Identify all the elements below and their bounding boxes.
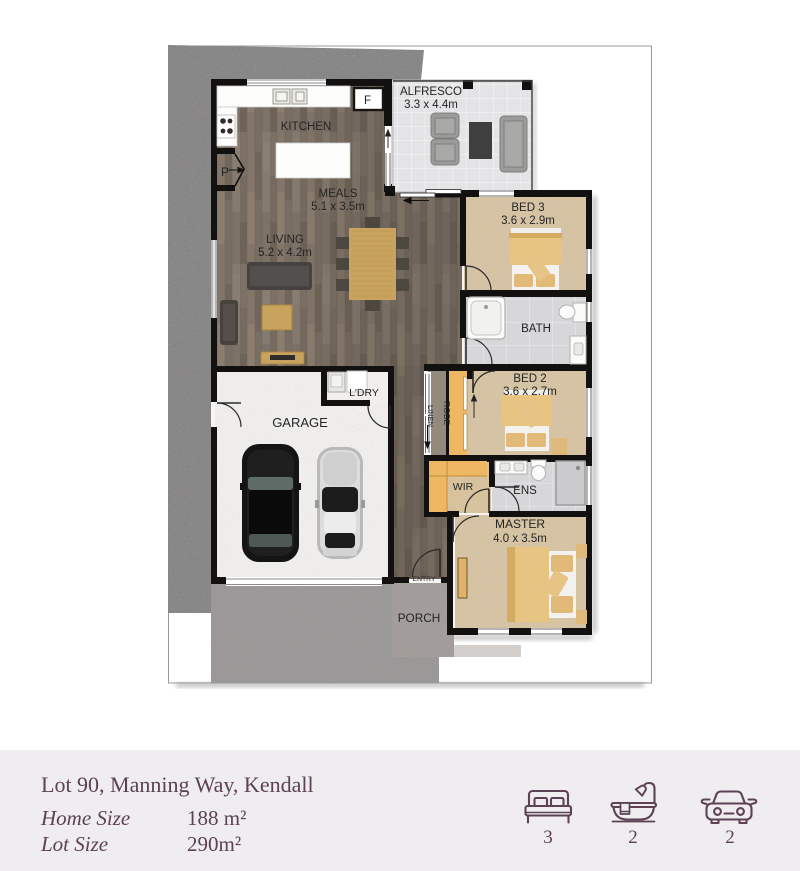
svg-text:BED 3: BED 3 [511, 202, 544, 214]
svg-text:4.0 x 3.5m: 4.0 x 3.5m [493, 533, 547, 545]
svg-text:Lot 90, Manning Way, Kendall: Lot 90, Manning Way, Kendall [41, 772, 314, 797]
svg-text:ROBE: ROBE [442, 401, 452, 425]
svg-text:PORCH: PORCH [398, 611, 441, 625]
svg-text:2: 2 [628, 827, 638, 848]
svg-text:WIR: WIR [453, 481, 474, 493]
svg-text:3: 3 [543, 827, 553, 848]
svg-text:290m²: 290m² [187, 832, 241, 856]
svg-text:BATH: BATH [521, 323, 551, 335]
svg-text:2: 2 [725, 827, 735, 848]
svg-text:L'DRY: L'DRY [349, 387, 379, 399]
svg-text:BED 2: BED 2 [513, 373, 546, 385]
svg-text:3.6 x 2.7m: 3.6 x 2.7m [503, 386, 557, 398]
svg-text:Lot Size: Lot Size [40, 832, 108, 856]
svg-text:P: P [221, 165, 229, 179]
svg-text:3.3 x 4.4m: 3.3 x 4.4m [404, 99, 458, 111]
svg-text:ENS: ENS [513, 485, 537, 497]
svg-text:3.6 x 2.9m: 3.6 x 2.9m [501, 215, 555, 227]
svg-text:ALFRESCO: ALFRESCO [400, 86, 462, 98]
svg-text:5.1 x 3.5m: 5.1 x 3.5m [311, 201, 365, 213]
svg-text:5.2 x 4.2m: 5.2 x 4.2m [258, 247, 312, 259]
svg-text:MEALS: MEALS [319, 188, 358, 200]
svg-text:LIVING: LIVING [266, 234, 304, 246]
svg-text:F: F [364, 95, 371, 107]
svg-text:MASTER: MASTER [495, 517, 545, 531]
svg-text:LINEN: LINEN [426, 405, 435, 427]
svg-text:KITCHEN: KITCHEN [281, 121, 331, 133]
svg-text:GARAGE: GARAGE [272, 415, 328, 430]
svg-text:188 m²: 188 m² [187, 806, 246, 830]
svg-text:Home Size: Home Size [40, 806, 130, 830]
svg-text:ENTRY: ENTRY [413, 576, 436, 583]
